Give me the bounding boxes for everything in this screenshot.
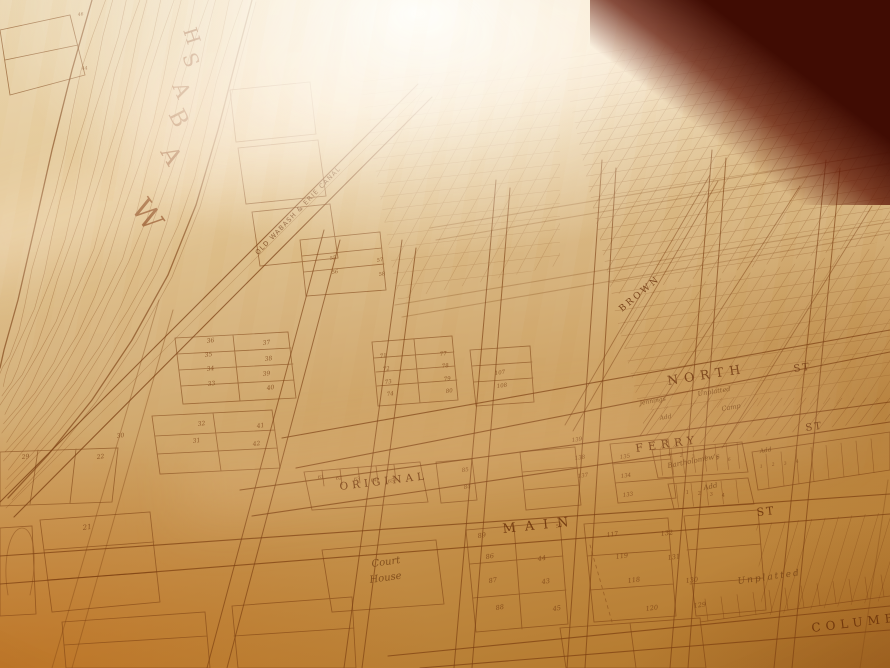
block-grid-line — [769, 590, 772, 612]
block-grid-line — [540, 32, 890, 84]
lot-number: 77 — [439, 351, 447, 358]
street-label: NORTH — [666, 361, 747, 388]
block-grid-line — [540, 54, 890, 106]
block-grid-line — [651, 240, 771, 430]
block-grid-line — [742, 240, 862, 430]
block-grid-line — [785, 40, 890, 320]
lot-number: 84 — [463, 484, 471, 491]
lot-number: 61 — [317, 474, 324, 481]
area-label: Unplatted — [737, 568, 801, 587]
block-grid-line — [540, 10, 890, 62]
lot-number: 4 — [720, 493, 725, 500]
river-name-letter: H — [178, 25, 204, 48]
block-grid-line — [350, 85, 570, 109]
alley-dashed-line — [590, 545, 612, 622]
lot-number: 139 — [571, 437, 583, 444]
block-grid-line — [759, 40, 890, 320]
block-grid-line — [540, 0, 890, 51]
block-grid-line — [781, 240, 890, 430]
block-grid-line — [332, 60, 472, 320]
block-grid-line — [768, 240, 888, 430]
block-grid-line — [460, 40, 630, 320]
lot-number: 38 — [264, 355, 273, 363]
lot-number: 46 — [76, 11, 84, 18]
block-grid-line — [736, 480, 739, 503]
lot-number: 3 — [783, 461, 787, 467]
lot-number: 31 — [192, 437, 201, 445]
block-grid-line — [871, 439, 874, 473]
area-label: Add — [758, 446, 772, 455]
block-grid-line — [350, 46, 570, 70]
lot-number: 58 — [378, 271, 385, 278]
lot-number: 21 — [81, 523, 92, 532]
lot-number: 134 — [620, 473, 632, 480]
ns-street-line — [362, 248, 416, 668]
lot-number: 2 — [770, 462, 775, 468]
lot-number: 56 — [331, 269, 339, 276]
block-grid-line — [350, 280, 570, 304]
lot-number: 1 — [759, 464, 763, 470]
block-grid-line — [856, 441, 859, 475]
lot-number: 30 — [116, 432, 125, 440]
canal-bank-line — [0, 84, 418, 502]
lot-number: 88 — [495, 603, 504, 612]
block-grid-line — [881, 575, 884, 597]
block-grid-line — [350, 137, 570, 161]
lot-number: 107 — [494, 370, 506, 377]
block-grid-line — [841, 443, 844, 477]
area-label: Camp — [721, 402, 742, 413]
block-grid-line — [676, 484, 679, 507]
block-grid-line — [316, 60, 456, 320]
river-name-letter: A — [154, 140, 188, 170]
block-grid-line — [540, 98, 890, 150]
lot-number: 3 — [709, 492, 713, 498]
lot-number: 72 — [382, 366, 390, 373]
lot-number: 35 — [204, 351, 213, 359]
lot-number: 130 — [685, 575, 698, 585]
lot-number: 41 — [255, 422, 265, 430]
block-grid-line — [428, 60, 568, 320]
area-label: ORIGINAL — [339, 470, 429, 493]
block-grid-line — [350, 124, 570, 148]
lot-number: 89 — [477, 531, 486, 540]
block-grid-line — [655, 40, 825, 320]
block-grid-line — [720, 40, 890, 320]
lot-number: 44 — [536, 554, 546, 563]
river-flow-line — [5, 0, 147, 414]
river-flow-line — [0, 0, 140, 405]
block-grid-line — [540, 0, 890, 40]
blocks-center — [300, 232, 766, 632]
lot-number: 64 — [370, 477, 377, 484]
block-grid-line — [863, 40, 890, 320]
lot-number: 65 — [387, 478, 394, 485]
lot-number: 3 — [691, 454, 695, 460]
block-grid-line — [350, 111, 570, 135]
block-grid-line — [865, 577, 868, 599]
street-label: ST — [756, 504, 776, 519]
river-flow-line — [2, 0, 126, 396]
lot-number: 6 — [727, 457, 731, 463]
area-label: Jennings — [637, 395, 666, 407]
block-grid-line — [556, 60, 696, 320]
area-label: Add — [658, 413, 672, 422]
lot-number: 133 — [622, 492, 634, 499]
river-bank-line — [0, 0, 92, 368]
block-grid-line — [348, 60, 488, 320]
block-grid-line — [849, 579, 852, 601]
ns-street-line — [472, 188, 510, 668]
lot-number: 43 — [540, 577, 550, 586]
street-label: ST — [793, 362, 812, 375]
lot-number: 86 — [485, 552, 494, 561]
faded-blocks-upper-center — [300, 46, 744, 320]
block-grid-line — [540, 109, 890, 161]
block-grid-line — [744, 398, 794, 465]
canal-lines — [0, 84, 432, 517]
street-label: MAIN — [502, 514, 578, 537]
ns-street-line — [227, 240, 340, 668]
block-grid-line — [412, 60, 552, 320]
lot-number: 1 — [667, 452, 671, 458]
area-label: Unplatted — [697, 385, 731, 398]
area-label: Add — [702, 481, 719, 492]
river-name-letter: A — [167, 77, 196, 102]
block-grid-line — [830, 505, 868, 632]
block-grid-line — [540, 241, 890, 293]
block-grid-line — [604, 60, 744, 320]
lot-number: 85 — [461, 467, 469, 474]
block-grid-line — [444, 60, 584, 320]
block-grid-line — [396, 60, 536, 320]
lot-number: 63 — [353, 476, 360, 483]
block-grid-line — [796, 450, 799, 484]
block-grid-line — [726, 443, 729, 469]
ns-street-line — [585, 168, 616, 668]
area-label: House — [368, 571, 403, 587]
west-street — [52, 300, 173, 668]
block-grid-line — [380, 60, 520, 320]
curved-road-loop — [6, 528, 34, 595]
block-grid-line — [350, 150, 570, 174]
block-grid-line — [538, 40, 708, 320]
block-grid-line — [737, 595, 740, 617]
block-grid-line — [540, 21, 890, 73]
brown-street-line — [573, 181, 718, 431]
block-grid-line — [350, 98, 570, 122]
river-flow-line — [5, 0, 242, 489]
block-grid-line — [828, 398, 878, 465]
block-grid-line — [826, 445, 829, 479]
block-grid-line — [781, 452, 784, 486]
plat-map-photo: NORTHSTFERRYSTMAINSTCOLUMBIABROWNORIGINA… — [0, 0, 890, 668]
block-grid-line — [600, 310, 890, 352]
lot-number: 44 — [80, 65, 88, 72]
river-name-letter: B — [163, 105, 194, 132]
lot-number: 2 — [696, 491, 701, 498]
lot-number: 40 — [265, 384, 275, 392]
block-grid-line — [864, 398, 890, 465]
lot-number: 57 — [376, 257, 384, 264]
lot-number: 37 — [262, 339, 271, 347]
block-grid-line — [721, 597, 724, 619]
lot-number: 74 — [386, 391, 394, 398]
block-grid-line — [476, 60, 616, 320]
block-grid-line — [499, 40, 669, 320]
block-grid-line — [837, 40, 890, 320]
block-grid-line — [737, 442, 740, 468]
lot-number: 55 — [329, 255, 336, 262]
block-grid-line — [691, 483, 694, 506]
block-grid-line — [350, 163, 570, 187]
lot-number: 117 — [606, 530, 618, 539]
columbia-street-line — [420, 630, 890, 668]
lot-number: 79 — [443, 376, 451, 383]
plat-map-drawing: NORTHSTFERRYSTMAINSTCOLUMBIABROWNORIGINA… — [0, 0, 890, 668]
river-name-letter: W — [123, 193, 169, 238]
block-grid-line — [600, 323, 890, 365]
lot-number: 137 — [577, 473, 589, 480]
lot-number: 34 — [206, 365, 215, 373]
lot-number: 131 — [667, 552, 680, 562]
lot-number: 87 — [488, 576, 498, 585]
block-grid-line — [540, 87, 890, 139]
lot-number: 62 — [335, 475, 342, 482]
lot-number: 129 — [693, 600, 706, 610]
block-grid-line — [852, 398, 890, 465]
block-grid-line — [846, 240, 890, 430]
canal-center-line — [6, 90, 424, 508]
diagonal-street-line — [722, 206, 872, 448]
block-grid-line — [350, 59, 570, 83]
block-grid-line — [350, 189, 570, 213]
block-grid-line — [703, 240, 823, 430]
lot-number: 73 — [384, 379, 392, 386]
lot-number: 120 — [645, 603, 658, 613]
lot-number: 132 — [660, 528, 673, 538]
lot-number: 138 — [574, 455, 586, 462]
blocks-east — [560, 432, 890, 668]
block-grid-line — [350, 176, 570, 200]
river-flow-line — [0, 0, 106, 377]
block-grid-line — [876, 398, 890, 465]
ns-street-line — [860, 480, 888, 668]
block-grid-line — [525, 40, 695, 320]
lot-number: 1 — [685, 490, 689, 496]
block-grid-line — [766, 454, 769, 488]
block-grid-line — [350, 72, 570, 96]
block-grid-line — [540, 197, 890, 249]
lot-number: 39 — [262, 370, 271, 378]
block-grid-line — [350, 228, 570, 252]
block-grid-line — [540, 65, 890, 117]
lot-number: 119 — [615, 551, 628, 561]
block-grid-line — [460, 60, 600, 320]
block-grid-line — [707, 40, 877, 320]
lot-number: 42 — [251, 440, 261, 448]
lot-number: 78 — [441, 363, 449, 370]
area-label: Court — [371, 555, 402, 570]
city-blocks — [0, 15, 890, 668]
block-grid-line — [540, 131, 890, 183]
lot-number: 118 — [627, 575, 640, 585]
lot-number: 22 — [95, 453, 105, 461]
block-grid-line — [540, 230, 890, 282]
lot-number: 33 — [207, 380, 216, 388]
block-grid-line — [540, 43, 890, 95]
block-grid-line — [733, 40, 890, 320]
lot-number: 36 — [206, 337, 215, 345]
river-wabash — [0, 0, 256, 500]
lot-number: 4 — [794, 459, 799, 465]
lot-number: 71 — [379, 353, 387, 360]
river-name-letter: S — [177, 49, 204, 70]
block-grid-line — [807, 240, 890, 430]
lot-number: 108 — [496, 383, 508, 390]
lot-number: 32 — [197, 420, 206, 428]
block-grid-line — [660, 449, 663, 475]
block-grid-line — [540, 120, 890, 172]
block-grid-line — [833, 581, 836, 603]
block-grid-line — [573, 240, 693, 430]
lot-number: 45 — [551, 604, 561, 613]
lot-number: 29 — [20, 453, 30, 461]
lot-number: 80 — [445, 388, 453, 395]
block-grid-line — [648, 398, 698, 465]
